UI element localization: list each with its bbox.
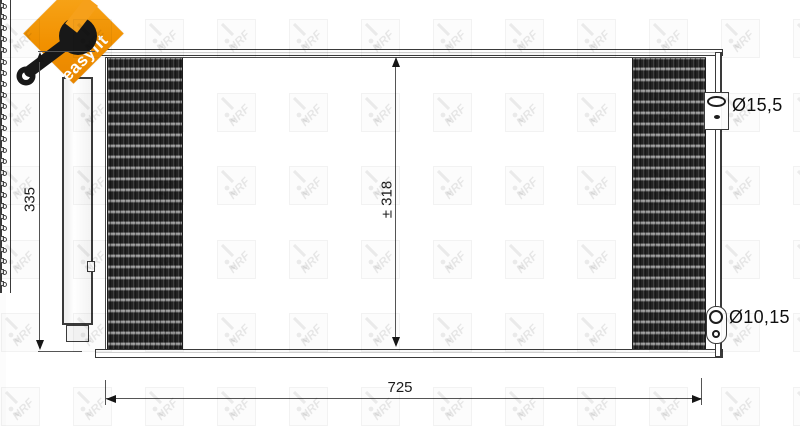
- tube-end-tick: [0, 258, 4, 263]
- wrench-icon: [0, 0, 130, 130]
- top-port-opening: [707, 96, 726, 107]
- arrow-down-icon: [36, 340, 44, 350]
- arrow-up-icon: [392, 57, 400, 67]
- tube-end-tick: [0, 281, 4, 286]
- overall-height-label: 335: [22, 161, 39, 239]
- bottom-bar: [95, 349, 723, 358]
- tube-end-tick: [0, 269, 4, 274]
- overall-width-label: 725: [305, 379, 495, 396]
- tube-end-tick: [0, 181, 4, 186]
- right-side-plate: [0, 293, 6, 426]
- easyfit-badge: easyfit: [0, 0, 160, 150]
- arrow-right-icon: [692, 395, 702, 403]
- tube-end-tick: [0, 214, 4, 219]
- drier-bottom-cap: [66, 325, 89, 342]
- extension-line: [38, 51, 95, 52]
- top-port-bolt-hole: [714, 115, 720, 119]
- top-bar: [95, 49, 723, 56]
- arrow-up-icon: [36, 52, 44, 62]
- top-port-diameter-label: Ø15,5: [732, 95, 783, 116]
- tube-end-tick: [0, 225, 4, 230]
- tube-end-tick: [0, 203, 4, 208]
- tube-end-tick: [0, 192, 4, 197]
- drier-clip: [87, 261, 95, 272]
- bottom-port-opening: [709, 310, 723, 324]
- core-height-label: ± 318: [379, 161, 396, 239]
- arrow-down-icon: [392, 337, 400, 347]
- tube-end-tick: [0, 158, 4, 163]
- dimension-line: [106, 398, 702, 399]
- extension-line: [38, 351, 82, 352]
- tube-end-tick: [0, 170, 4, 175]
- product-diagram: 335 ± 318 725 Ø15,5 Ø10,15 easyfit NRFNR…: [0, 0, 800, 426]
- dimension-line: [39, 55, 40, 348]
- bottom-port-diameter-label: Ø10,15: [729, 307, 790, 328]
- condenser-core: [105, 57, 706, 350]
- core-fins-right: [632, 58, 706, 349]
- tube-end-tick: [0, 236, 4, 241]
- tube-end-tick: [0, 247, 4, 252]
- bottom-port-bolt-hole: [712, 330, 720, 338]
- arrow-left-icon: [106, 395, 116, 403]
